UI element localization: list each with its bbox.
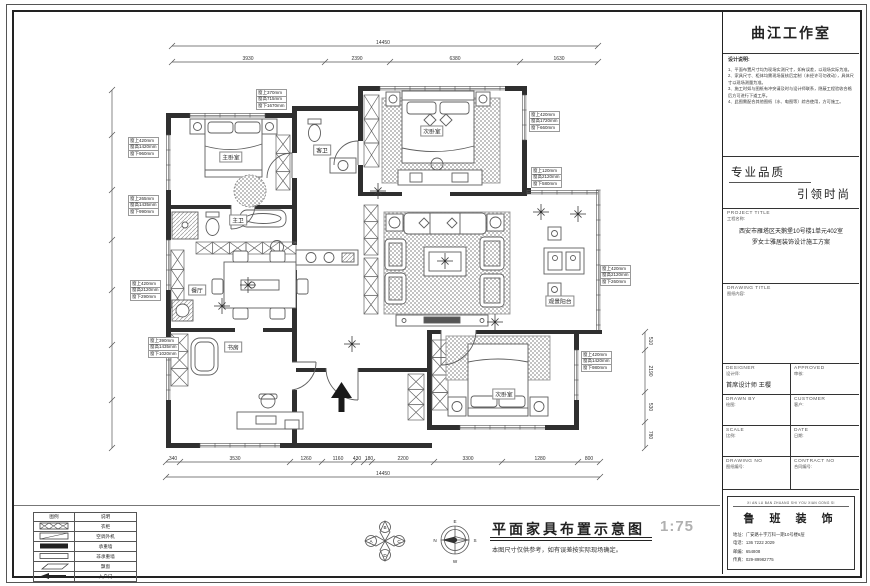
company-fax: 传真：029-89982775 [733, 556, 849, 565]
company-name-en: XI AN LU BAN ZHUANG SHI YOU XIAN GONG SI [733, 501, 849, 507]
entry-door-icon [38, 572, 70, 580]
customer-cell: CUSTOMER 客户: [791, 395, 859, 426]
dimension-label: 800 [585, 456, 594, 462]
dimension-label: 3930 [242, 56, 253, 62]
company-phone: 电话：136 7222 2029 [733, 539, 849, 548]
dimension-label: 180 [365, 456, 374, 462]
title-block-grid: DESIGNER 设计师: 首席设计师 王樱 APPROVED 审核: DRAW… [723, 364, 859, 490]
plant [570, 206, 586, 222]
legend-row: 衣柜 [34, 522, 137, 532]
slogan-line1: 专业品质 [729, 161, 811, 183]
date-cell: DATE 日期: [791, 426, 859, 457]
dining-furniture [212, 250, 358, 319]
bearing-wall-icon [38, 542, 70, 550]
company-address: 地址：广安路十字万科一期10号楼6层 [733, 531, 849, 540]
plant [533, 204, 549, 220]
dimension-label: 2390 [351, 56, 362, 62]
bedroom3-furniture [441, 330, 550, 416]
dimension-label: 430 [353, 456, 362, 462]
master-bedroom-furniture [190, 119, 277, 207]
drawing-no-cell: DRAWING NO 图纸编号: [723, 457, 791, 488]
dimension-label: 14450 [376, 471, 390, 477]
dimension-label: 14450 [376, 40, 390, 46]
project-name-line1: 西安市雁塔区天鹅堡10号楼1单元402室 [727, 227, 855, 238]
caption-note: 本图尺寸仅供参考，如有误差按实际现场确定。 [492, 545, 622, 554]
ac-unit-icon [38, 532, 70, 540]
dimension-label: 510 [647, 337, 653, 346]
bay-window-icon [38, 562, 70, 570]
scale-cell: SCALE 比例: [723, 426, 791, 457]
designer-cell: DESIGNER 设计师: 首席设计师 王樱 [723, 364, 791, 395]
caption-underline [490, 537, 652, 538]
north-compass: E S W N [430, 515, 480, 565]
dimension-label: 2190 [647, 365, 653, 376]
plant [370, 183, 386, 199]
design-note: 3、施工时如与图纸有冲突请及时与设计师联系，隐蔽工程验收合格后方可进行下道工序。 [728, 86, 854, 99]
company-name: 鲁 班 装 饰 [733, 510, 849, 526]
non-bearing-wall-icon [38, 552, 70, 560]
design-note: 4、此图需配合其他图纸（水、电图等）综合使用，方可施工。 [728, 99, 854, 106]
compass-e: E [453, 519, 456, 524]
drawing-title-section: DRAWING TITLE 图纸内容: [723, 284, 859, 363]
drawing-caption-title: 平面家具布置示意图 [492, 519, 645, 539]
dimension-label: 1630 [553, 56, 564, 62]
legend-table: 图例 说明 衣柜 空调外机 承重墙 非承重墙 飘窗 入户门 [33, 512, 137, 582]
project-title-section: PROJECT TITLE 工程名称: 西安市雁塔区天鹅堡10号楼1单元402室… [723, 209, 859, 284]
dimension-label: 3300 [462, 456, 473, 462]
contract-no-cell: CONTRACT NO 合同编号: [791, 457, 859, 488]
dimension-label: 780 [647, 431, 653, 440]
ref-letter-a: A [369, 539, 373, 544]
legend-row: 非承重墙 [34, 552, 137, 562]
compass-w: W [453, 559, 458, 564]
dimension-label: 340 [169, 456, 178, 462]
ref-letter-b: B [383, 525, 386, 530]
legend-header-desc: 说明 [75, 513, 137, 522]
dimension-label: 1160 [333, 456, 344, 462]
company-post: 邮编：654808 [733, 548, 849, 557]
project-title-cn: 工程名称: [727, 216, 855, 222]
drawing-scale: 1:75 [660, 518, 694, 535]
living-room-furniture [384, 212, 510, 326]
compass-s: S [473, 538, 476, 543]
company-block: XI AN LU BAN ZHUANG SHI YOU XIAN GONG SI… [727, 496, 855, 570]
plant [344, 336, 360, 352]
compass-n: N [433, 538, 436, 543]
plant [487, 314, 503, 330]
study-furniture [191, 338, 316, 429]
title-block: 曲江工作室 设计说明: 1、平面布置尺寸均为现场实测尺寸，如有误差，以现场实际为… [722, 12, 859, 574]
drawn-by-cell: DRAWN BY 绘图: [723, 395, 791, 426]
balcony-furniture [544, 227, 584, 296]
bedroom2-furniture [382, 91, 500, 185]
dimension-label: 1280 [534, 456, 545, 462]
design-notes-list: 1、平面布置尺寸均为现场实测尺寸，如有误差，以现场实际为准。2、家具尺寸、柜体均… [728, 67, 854, 106]
legend-row: 飘窗 [34, 562, 137, 572]
dimension-label: 1260 [300, 456, 311, 462]
slogan-line2: 引领时尚 [729, 183, 853, 202]
legend-row: 入户门 [34, 572, 137, 582]
guest-bath-fixtures [308, 119, 358, 173]
reference-symbol-abcd: B A C D [362, 518, 408, 564]
dimension-label: 2200 [397, 456, 408, 462]
drawing-sheet: 1445039302390638016303403530126011604301… [0, 0, 870, 586]
caption-underline [490, 540, 652, 541]
legend-header-symbol: 图例 [34, 513, 75, 522]
dimension-label: 530 [647, 403, 653, 412]
project-name-line2: 罗女士雅居装饰设计施工方案 [727, 238, 855, 249]
dimension-label: 6380 [449, 56, 460, 62]
wardrobe-icon [38, 522, 70, 530]
design-notes: 设计说明: 1、平面布置尺寸均为现场实测尺寸，如有误差，以现场实际为准。2、家具… [723, 54, 859, 157]
designer-name: 首席设计师 王樱 [726, 380, 787, 389]
design-note: 2、家具尺寸、柜体均需现场复核后定制（未经许可勿改动），具体尺寸以现场测量为准。 [728, 73, 854, 86]
legend-row: 承重墙 [34, 542, 137, 552]
design-notes-title: 设计说明: [728, 57, 854, 65]
drawing-title-cn: 图纸内容: [727, 291, 855, 297]
studio-name: 曲江工作室 [723, 12, 859, 54]
legend-row: 空调外机 [34, 532, 137, 542]
dimension-label: 3530 [229, 456, 240, 462]
slogan-block: 专业品质 引领时尚 [723, 157, 859, 209]
approved-cell: APPROVED 审核: [791, 364, 859, 395]
